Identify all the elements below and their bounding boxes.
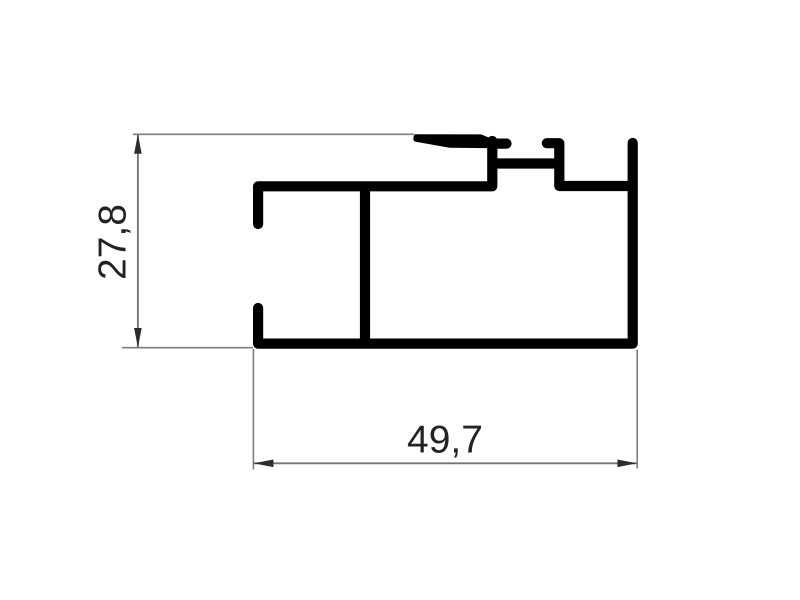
svg-text:27,8: 27,8	[92, 204, 135, 280]
svg-text:49,7: 49,7	[407, 419, 483, 462]
